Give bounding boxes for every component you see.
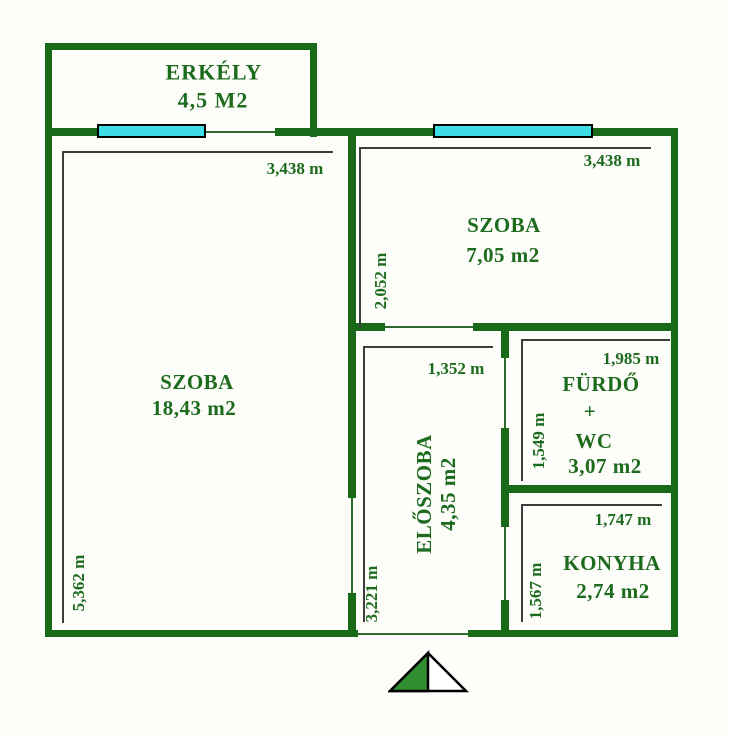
door-konyha	[504, 527, 506, 600]
wall-interior-vertical2-seg2	[501, 428, 509, 493]
door-szoba-large	[351, 498, 353, 593]
wall-interior-horizontal1-left	[348, 323, 385, 331]
wall-interior-vertical2-seg3	[501, 493, 509, 527]
label-szoba-small-dim-left: 2,052 m	[371, 253, 391, 310]
dim-line-szoba-large-left	[62, 151, 64, 623]
dim-line-furdo-left	[521, 339, 523, 481]
door-balcony	[206, 131, 275, 133]
label-konyha-dim-left: 1,567 m	[526, 563, 546, 620]
wall-right-outer	[671, 128, 678, 637]
label-eloszoba-dim-top: 1,352 m	[428, 359, 485, 379]
door-furdo	[504, 358, 506, 428]
window-balcony	[97, 124, 206, 138]
dim-line-eloszoba-top	[363, 346, 493, 348]
label-szoba-large-dim-top: 3,438 m	[267, 159, 324, 179]
wall-interior-vertical1-lower	[348, 593, 356, 637]
label-szoba-large-dim-left: 5,362 m	[69, 555, 89, 612]
door-szoba-small	[385, 326, 473, 328]
window-szoba-small	[433, 124, 593, 138]
label-konyha-dim-top: 1,747 m	[595, 510, 652, 530]
dim-line-szoba-small-left	[359, 147, 361, 328]
dim-line-konyha-left	[521, 504, 523, 622]
label-szoba-small-name: SZOBA	[467, 213, 541, 237]
wall-interior-vertical2-seg1	[501, 323, 509, 358]
label-szoba-large-area: 18,43 m2	[152, 396, 237, 420]
wall-top-left-segment	[45, 128, 97, 136]
label-erkely-area: 4,5 M2	[178, 87, 249, 112]
wall-top-right-segment	[593, 128, 678, 136]
label-furdo-dim-left: 1,549 m	[529, 413, 549, 470]
dim-line-szoba-small-top	[359, 147, 651, 149]
wall-left-outer	[45, 128, 52, 637]
label-furdo-area: 3,07 m2	[568, 454, 642, 478]
dim-line-furdo-top	[521, 339, 670, 341]
label-eloszoba-name: ELŐSZOBA	[412, 434, 436, 554]
label-erkely-name: ERKÉLY	[166, 59, 263, 84]
wall-interior-horizontal2	[501, 485, 678, 493]
label-eloszoba-name-area: ELŐSZOBA 4,35 m2	[412, 434, 460, 554]
wall-balcony-left	[45, 43, 52, 137]
label-konyha-area: 2,74 m2	[576, 579, 650, 603]
label-eloszoba-area: 4,35 m2	[436, 434, 460, 554]
label-szoba-small-area: 7,05 m2	[466, 243, 540, 267]
north-arrow-icon	[388, 650, 470, 696]
label-eloszoba-dim-left: 3,221 m	[362, 566, 382, 623]
wall-interior-vertical2-seg4	[501, 600, 509, 637]
wall-bottom-left-segment	[45, 630, 358, 637]
dim-line-szoba-large-top	[62, 151, 333, 153]
wall-interior-vertical1-upper	[348, 128, 356, 498]
label-konyha-name: KONYHA	[563, 551, 661, 575]
dim-line-konyha-top	[521, 504, 662, 506]
floor-plan: ERKÉLY 4,5 M2 3,438 m 5,362 m SZOBA 18,4…	[0, 0, 730, 736]
wall-bottom-right-segment	[468, 630, 678, 637]
label-szoba-small-dim-top: 3,438 m	[584, 151, 641, 171]
label-furdo-dim-top: 1,985 m	[603, 349, 660, 369]
label-furdo-name: FÜRDŐ	[562, 372, 639, 396]
wall-balcony-top	[45, 43, 317, 50]
label-furdo-wc: WC	[575, 429, 612, 453]
label-szoba-large-name: SZOBA	[160, 370, 234, 394]
wall-balcony-right	[310, 43, 317, 137]
door-entrance	[358, 633, 468, 635]
label-furdo-plus: +	[584, 399, 596, 423]
